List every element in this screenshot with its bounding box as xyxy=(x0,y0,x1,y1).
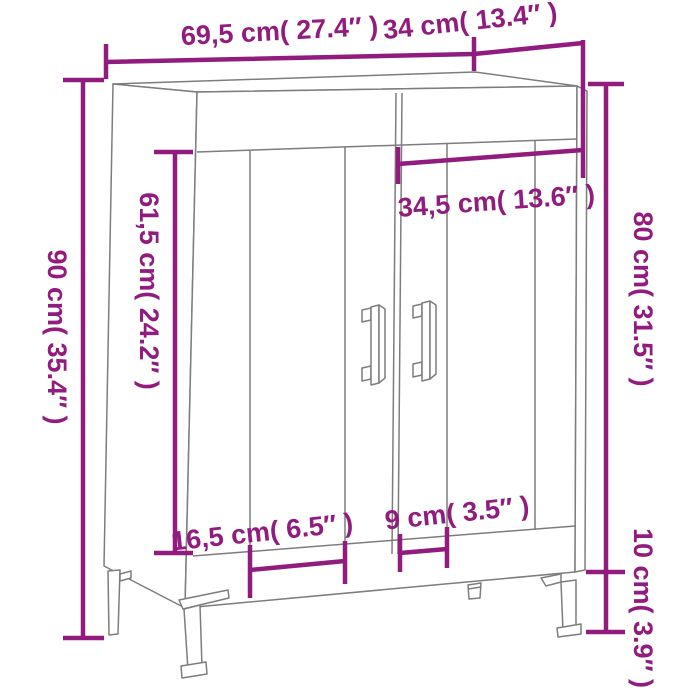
dimension-label-depth: 34 cm( 13.4″ ) xyxy=(381,0,558,45)
dimension-height: 90 cm( 35.4″ ) xyxy=(42,80,104,638)
dimension-label-body-height: 80 cm( 31.5″ ) xyxy=(628,211,658,386)
back-left-leg xyxy=(108,570,131,635)
dimension-label-height: 90 cm( 35.4″ ) xyxy=(42,249,72,424)
leg-shaft xyxy=(108,570,120,635)
handle-bar xyxy=(422,301,430,381)
dimension-label-width: 69,5 cm( 27.4″ ) xyxy=(180,11,379,51)
front-right-leg xyxy=(541,574,581,637)
dimension-line xyxy=(106,43,583,62)
back-right-leg xyxy=(468,583,481,599)
dimension-body-height: 80 cm( 31.5″ ) xyxy=(586,84,658,572)
handle-bar-side xyxy=(430,301,436,379)
handle-bar xyxy=(371,305,379,385)
leg-shaft xyxy=(184,605,202,670)
leg-foot xyxy=(557,624,581,637)
handle-bar-side xyxy=(379,305,385,383)
handle-foot xyxy=(413,304,422,318)
leg-foot xyxy=(181,662,207,678)
leg-shaft xyxy=(561,580,576,631)
dimension-leg-height: 10 cm( 3.9″ ) xyxy=(586,528,658,688)
leg-shaft xyxy=(468,583,481,599)
dimension-label-door-height: 61,5 cm( 24.2″ ) xyxy=(134,192,164,390)
leg-bracket xyxy=(541,574,561,586)
dimension-diagram: 69,5 cm( 27.4″ ) 34 cm( 13.4″ ) 90 cm( 3… xyxy=(0,0,700,700)
handle-foot xyxy=(362,308,371,322)
dimension-label-leg-height: 10 cm( 3.9″ ) xyxy=(628,528,658,688)
sideboard-dimension-drawing: 69,5 cm( 27.4″ ) 34 cm( 13.4″ ) 90 cm( 3… xyxy=(0,0,700,700)
handle-foot xyxy=(362,366,371,381)
handle-foot xyxy=(413,362,422,377)
